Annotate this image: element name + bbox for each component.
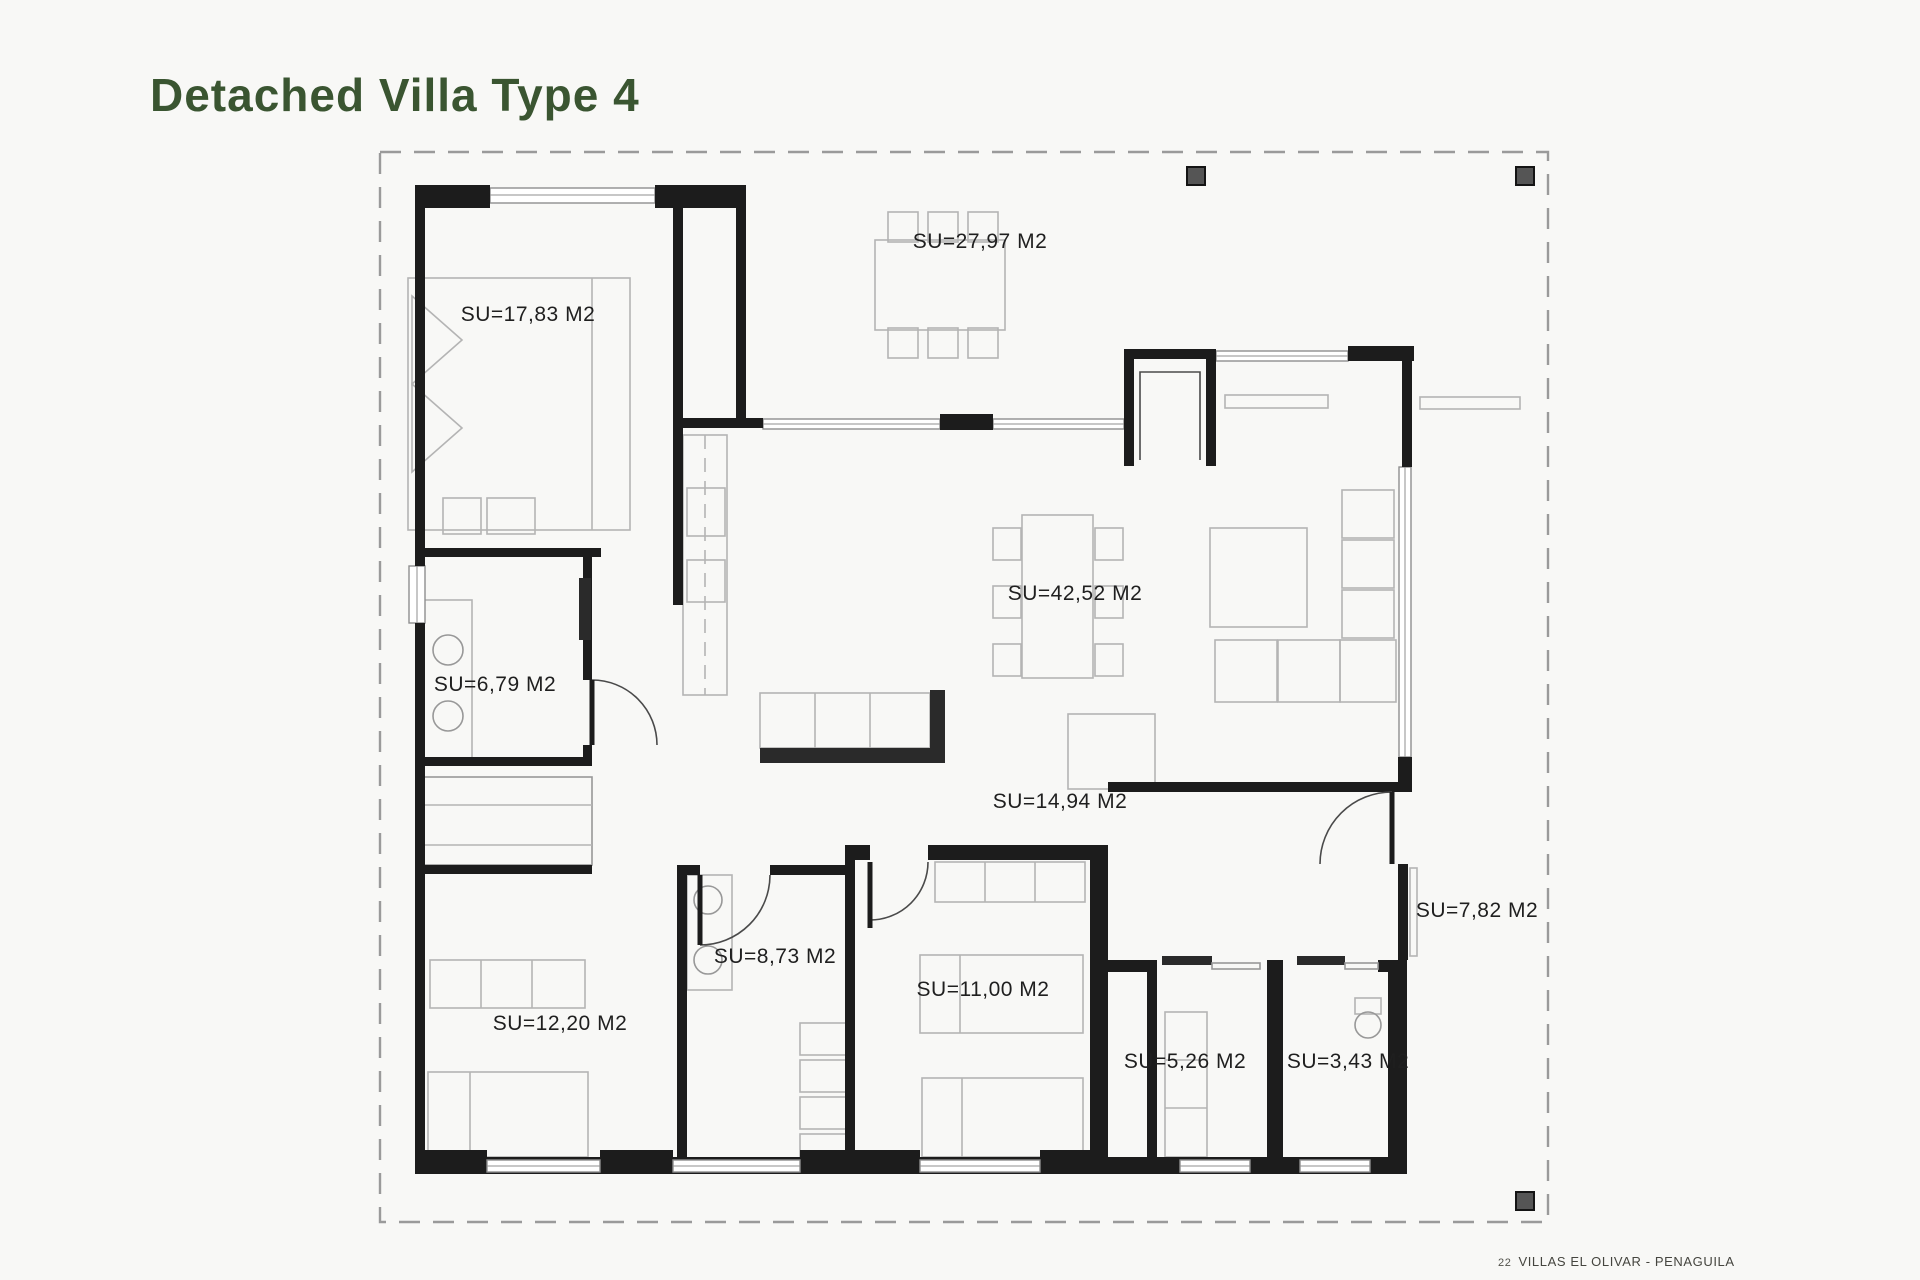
room-area-label: SU=42,52 M2 xyxy=(1008,582,1143,605)
room-area-label: SU=8,73 M2 xyxy=(714,945,836,968)
project-name: VILLAS EL OLIVAR - PENAGUILA xyxy=(1518,1254,1734,1269)
floor-plan-svg: SU=17,83 M2 SU=27,97 M2 SU=42,52 M2 SU=6… xyxy=(0,0,1920,1280)
storage-shelves xyxy=(1165,1012,1207,1157)
room-area-label: SU=11,00 M2 xyxy=(917,978,1050,1001)
room-area-label: SU=17,83 M2 xyxy=(461,303,596,326)
page-number: 22 xyxy=(1498,1257,1511,1269)
bedroom2-furniture xyxy=(428,960,588,1157)
window-layer xyxy=(409,188,1411,757)
room-area-label: SU=7,82 M2 xyxy=(1416,899,1538,922)
room-area-label: SU=6,79 M2 xyxy=(434,673,556,696)
room-area-label: SU=5,26 M2 xyxy=(1124,1050,1246,1073)
pillar-marker xyxy=(1516,167,1534,185)
room-area-label: SU=14,94 M2 xyxy=(993,790,1128,813)
pillar-marker xyxy=(1516,1192,1534,1210)
page-footer: 22VILLAS EL OLIVAR - PENAGUILA xyxy=(1498,1254,1735,1269)
brochure-page: Detached Villa Type 4 xyxy=(0,0,1920,1280)
bedroom3-furniture xyxy=(920,862,1085,1157)
room-area-label: SU=3,43 M2 xyxy=(1287,1050,1409,1073)
kitchen-counters xyxy=(683,435,945,763)
room-area-label: SU=12,20 M2 xyxy=(493,1012,628,1035)
room-area-label: SU=27,97 M2 xyxy=(913,230,1048,253)
hall-closet xyxy=(424,777,592,865)
wc-toilet xyxy=(1355,998,1381,1038)
bathroom2-fixtures xyxy=(687,875,850,1157)
pillar-marker xyxy=(1187,167,1205,185)
